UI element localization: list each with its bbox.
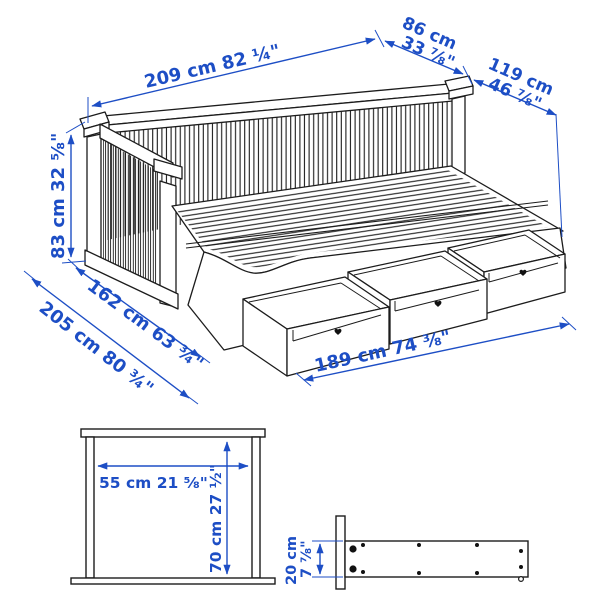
back-right-post: [452, 96, 465, 176]
front-view-right-post: [252, 437, 260, 578]
right-extension-line: [556, 114, 562, 237]
front-view-base-plate: [71, 578, 275, 584]
dim-length-label: 209 cm 82 ¼": [142, 40, 282, 92]
dimension-diagram: 209 cm 82 ¼" 86 cm 33 ⅞" 119 cm 46 ⅞" 83…: [0, 0, 600, 600]
frame-front-view: [71, 429, 275, 584]
diagram-canvas: 209 cm 82 ¼" 86 cm 33 ⅞" 119 cm 46 ⅞" 83…: [0, 0, 600, 600]
dim-rail-height-cm-label: 20 cm: [284, 536, 300, 585]
rail-caster: [519, 577, 524, 582]
dim-rail-height-in-label: 7 ⅞": [299, 540, 315, 578]
dim-height-label: 83 cm 32 ⅝": [48, 133, 69, 259]
back-left-post: [87, 134, 101, 266]
dim-inner-height-label: 70 cm 27 ½": [207, 464, 225, 573]
dim-extended-depth-label: 119 cm 46 ⅞": [478, 54, 562, 119]
front-view-top-rail: [81, 429, 265, 437]
rail-board: [345, 541, 528, 577]
front-view-left-post: [86, 437, 94, 578]
pullout-rail-side-view: [336, 516, 528, 589]
rail-end-plate: [336, 516, 345, 589]
dim-arm-depth-label: 86 cm 33 ⅞": [392, 13, 465, 73]
dim-inner-width-label: 55 cm 21 ⅝": [99, 474, 208, 492]
